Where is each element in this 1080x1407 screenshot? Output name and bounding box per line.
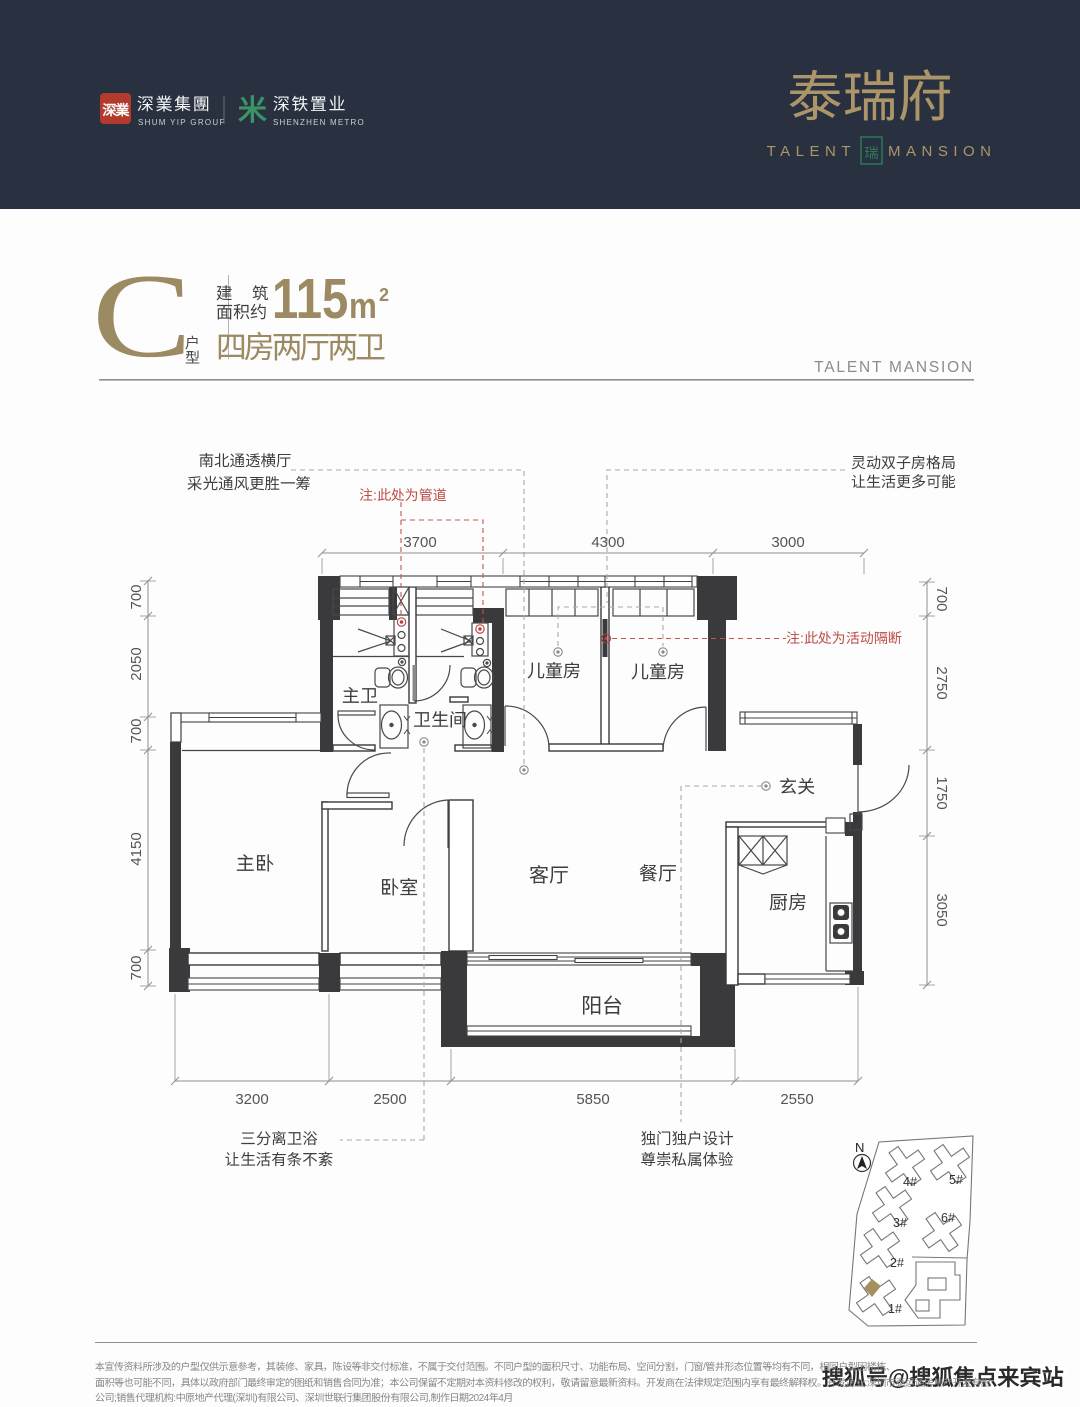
svg-text:儿童房: 儿童房 bbox=[527, 661, 581, 681]
svg-text:1#: 1# bbox=[888, 1302, 902, 1316]
svg-text:卫生间: 卫生间 bbox=[413, 710, 467, 730]
svg-text:卧室: 卧室 bbox=[380, 877, 418, 899]
svg-text:主卫: 主卫 bbox=[342, 686, 378, 706]
svg-text:2500: 2500 bbox=[373, 1091, 406, 1108]
svg-text:700: 700 bbox=[128, 584, 145, 609]
svg-text:注:此处为管道: 注:此处为管道 bbox=[359, 487, 447, 503]
svg-text:4#: 4# bbox=[903, 1175, 917, 1189]
svg-text:2750: 2750 bbox=[933, 666, 950, 699]
svg-text:三分离卫浴: 三分离卫浴 bbox=[240, 1130, 318, 1148]
svg-text:3050: 3050 bbox=[933, 893, 950, 926]
svg-text:6#: 6# bbox=[941, 1211, 955, 1225]
svg-text:700: 700 bbox=[933, 586, 950, 611]
svg-text:1750: 1750 bbox=[933, 776, 950, 809]
svg-text:3700: 3700 bbox=[403, 534, 436, 551]
svg-text:2#: 2# bbox=[890, 1256, 904, 1270]
svg-text:3200: 3200 bbox=[235, 1091, 268, 1108]
svg-text:儿童房: 儿童房 bbox=[631, 662, 685, 682]
svg-text:2550: 2550 bbox=[780, 1091, 813, 1108]
svg-text:餐厅: 餐厅 bbox=[639, 864, 677, 885]
svg-text:阳台: 阳台 bbox=[581, 995, 623, 1018]
svg-text:5#: 5# bbox=[949, 1173, 963, 1187]
svg-text:2050: 2050 bbox=[128, 647, 145, 680]
svg-text:让生活有条不紊: 让生活有条不紊 bbox=[225, 1151, 334, 1169]
svg-text:玄关: 玄关 bbox=[779, 777, 815, 797]
svg-text:客厅: 客厅 bbox=[529, 865, 569, 887]
svg-text:700: 700 bbox=[128, 718, 145, 743]
svg-text:主卧: 主卧 bbox=[236, 853, 274, 875]
svg-text:700: 700 bbox=[128, 955, 145, 980]
svg-text:5850: 5850 bbox=[576, 1091, 609, 1108]
svg-text:3#: 3# bbox=[893, 1216, 907, 1230]
svg-text:4150: 4150 bbox=[128, 832, 145, 865]
svg-text:注:此处为活动隔断: 注:此处为活动隔断 bbox=[786, 630, 902, 646]
svg-text:尊崇私属体验: 尊崇私属体验 bbox=[640, 1151, 733, 1169]
svg-text:南北通透横厅: 南北通透横厅 bbox=[198, 452, 291, 470]
svg-text:4300: 4300 bbox=[591, 534, 624, 551]
svg-text:灵动双子房格局: 灵动双子房格局 bbox=[851, 455, 956, 472]
svg-text:N: N bbox=[855, 1140, 864, 1155]
svg-text:让生活更多可能: 让生活更多可能 bbox=[851, 473, 956, 491]
svg-text:3000: 3000 bbox=[771, 534, 804, 551]
svg-text:厨房: 厨房 bbox=[769, 893, 807, 914]
svg-text:采光通风更胜一筹: 采光通风更胜一筹 bbox=[187, 475, 311, 493]
svg-text:独门独户设计: 独门独户设计 bbox=[640, 1130, 733, 1148]
